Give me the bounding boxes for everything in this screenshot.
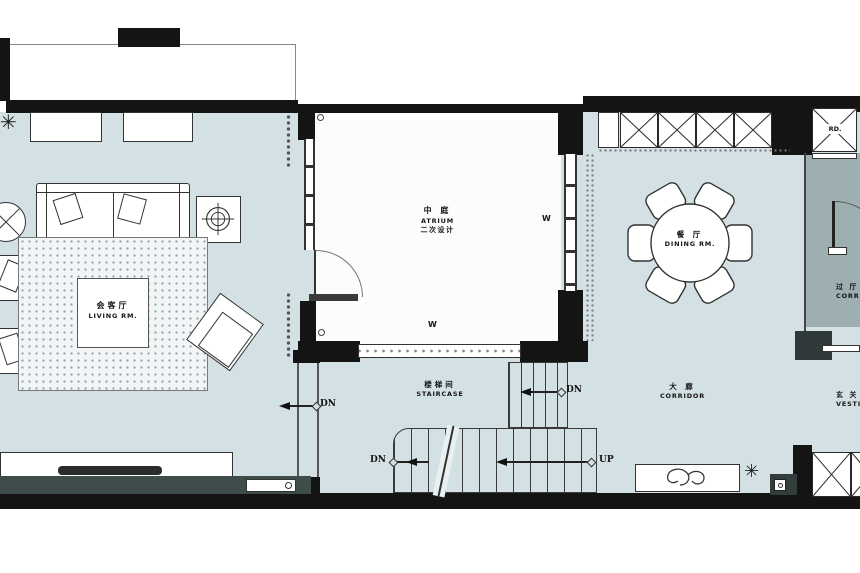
wall-stair-opening-top [293,350,320,363]
cabinet-x-icon [659,113,695,147]
atrium-label-cn: 中 庭 [390,206,485,217]
cabinet-end-panel [598,112,619,148]
control-knob-icon [778,483,783,488]
wall-niche [246,479,296,492]
staircase-label-cn: 楼梯间 [400,380,480,390]
column-marker-bottom [318,329,325,336]
opening-edge-right [317,363,319,477]
control-box-face [774,479,786,491]
console-table [635,464,740,492]
column-marker-top [317,114,324,121]
cabinet-x-icon [813,453,850,496]
up-arrowhead-icon [496,458,507,466]
cabinet-x-icon [852,453,860,496]
table-x-icon [0,203,25,241]
corridor-label-en: CORRIDOR [640,392,725,401]
dn-lower-label: DN [370,455,386,465]
wall-bottom [0,493,860,509]
dining-room-label: 餐 厅 DINING RM. [650,230,730,249]
round-side-table [0,202,26,242]
wall-atrium-right-lower [558,290,583,352]
w-marker-bottom: W [428,320,437,329]
living-room-label: 会客厅 LIVING RM. [77,301,149,321]
vestibule-label-en: VESTIBULE [836,400,860,409]
w-marker-right: W [542,214,551,223]
opening-edge-left [297,363,299,477]
side-table [196,196,241,243]
corridor-right-label-en: CORRIDOR [836,292,860,301]
living-room-label-cn: 会客厅 [77,301,149,312]
cabinet-x-icon [735,113,771,147]
curtain-icon [285,292,292,358]
atrium-window-sill-bottom [358,344,521,358]
entry-cabinet [851,452,860,497]
cabinet-x-icon [697,113,733,147]
wardrobe-cabinet [696,112,734,148]
vestibule-label: 玄 关 VESTIBULE [836,391,860,409]
living-room-label-en: LIVING RM. [77,312,149,321]
dark-room-door-swing [835,201,860,250]
wall-atrium-topleft [298,104,315,140]
entry-cabinet [812,452,851,497]
dn-upper-arrowhead-icon [520,388,531,396]
cabinet-x-icon [621,113,657,147]
staircase-label: 楼梯间 STAIRCASE [400,380,480,399]
window-cabinet-a [30,112,102,142]
window-cabinet-b [123,112,193,142]
dining-room-label-en: DINING RM. [650,240,730,249]
dn-lower-arrowhead-icon [406,458,417,466]
corridor-label-cn: 大 廊 [640,382,725,392]
dark-room-wall-line [804,153,806,331]
corridor-right-label: 过 厅 CORRIDOR [836,283,860,301]
dn-upper-label: DN [566,385,582,395]
control-box [770,474,797,495]
corridor-label: 大 廊 CORRIDOR [640,382,725,401]
elevator-label: RD. [822,124,848,134]
dn-living-label: DN [320,399,336,409]
atrium-label: 中 庭 ATRIUM 二次设计 [390,206,485,235]
dark-room-door-threshold [828,247,847,255]
cabinet-hatch-strip [598,148,790,154]
staircase-label-en: STAIRCASE [400,390,480,399]
curtain-icon [285,114,292,169]
wardrobe-cabinet [620,112,658,148]
niche-knob-icon [285,482,292,489]
wardrobe-cabinet [658,112,696,148]
atrium-label-note: 二次设计 [390,226,485,235]
dining-wall-hatch [585,153,594,341]
corridor-right-label-cn: 过 厅 [836,283,860,292]
dining-room-label-cn: 餐 厅 [650,230,730,240]
dn-living-arrowhead-icon [279,402,290,410]
wardrobe-cabinet [734,112,772,148]
plant-icon: ✳ [0,112,17,132]
floor-plan: W W RD. ✳ [0,0,860,573]
ornament-icon [664,465,714,491]
atrium-door-threshold [309,294,358,301]
plant-icon: ✳ [744,463,759,481]
atrium-window-left [304,139,315,250]
atrium-window-right [564,154,577,291]
wall-atrium-right-upper [558,104,583,155]
elevator-sill [812,153,857,159]
vestibule-label-cn: 玄 关 [836,391,860,400]
wall-stub-top [118,28,180,47]
up-arrow-line [502,461,590,463]
lamp-icon [197,197,240,242]
tv [58,466,162,475]
up-label: UP [599,455,614,465]
wall-console-right [822,345,860,352]
terrace-outline [8,44,296,101]
wall-stub-topleft [0,38,10,101]
wall-atrium-top [298,104,564,113]
atrium-label-en: ATRIUM [390,217,485,226]
